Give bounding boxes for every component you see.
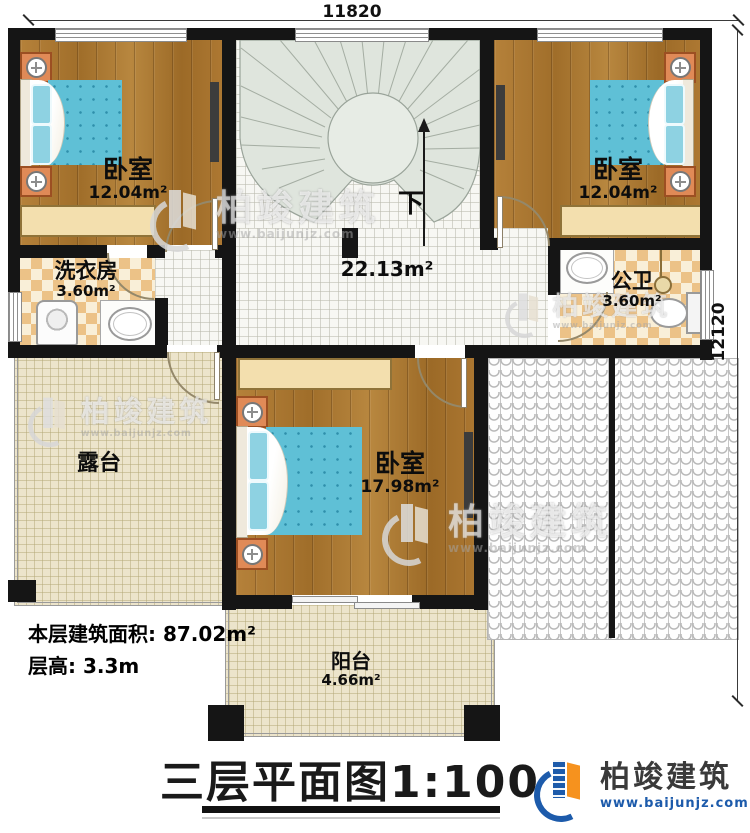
nightstand [236,538,268,570]
brand-logo-icon [534,758,592,814]
washing-machine [36,300,78,346]
dimension-top-value: 11820 [322,2,381,22]
sliding-door-panel [354,602,420,609]
wall-segment [8,28,55,40]
wall-segment [548,250,560,295]
stair-down-label: 下 [398,190,424,219]
title-underline-thin [202,817,500,819]
pillow [31,84,52,125]
wall-segment [222,40,236,610]
laundry-sink [108,307,152,341]
stair-direction-line [423,128,425,246]
title-underline-thick [202,806,500,813]
tv-panel [464,432,473,518]
pillow [248,431,269,481]
dimension-line-top [28,20,738,21]
room-area-bedroom-tl: 12.04m² [89,184,168,203]
pillow [664,84,685,125]
floor-plan-canvas: 柏竣建筑 www.baijunjz.com 柏竣建筑 www.baijunjz.… [0,0,750,833]
door-leaf [461,358,467,408]
wall-segment [661,28,712,40]
wall-segment [465,345,712,358]
brand-website: www.baijunjz.com [600,796,749,811]
floor-height-label: 层高: [28,654,76,678]
brand-name: 柏竣建筑 [600,761,749,796]
room-label-balcony: 阳台 [321,650,380,672]
stair-direction-arrow-icon [418,118,430,132]
balcony-pillar [464,705,500,741]
door-leaf [497,196,503,248]
dimension-right-value: 12120 [709,297,729,367]
nightstand [20,166,52,197]
room-area-balcony: 4.66m² [321,672,380,689]
room-label-laundry: 洗衣房 [55,260,118,283]
wall-segment [480,40,494,250]
window [537,28,663,42]
nightstand [236,396,268,428]
wall-segment [474,358,488,610]
room-area-bedroom-tr: 12.04m² [579,184,658,203]
room-area-bedroom-main: 17.98m² [361,478,440,497]
wall-segment [412,595,488,609]
door-leaf [214,352,220,400]
lamp-icon [26,57,47,78]
lamp-icon [670,57,691,78]
spiral-staircase [236,40,480,232]
wardrobe [20,205,156,237]
room-label-bedroom-tl: 卧室 [89,156,168,184]
room-label-bedroom-main: 卧室 [361,450,440,478]
room-area-laundry: 3.60m² [55,283,118,300]
wardrobe [238,358,392,390]
tv-panel [496,85,505,160]
pillow [664,124,685,165]
wall-segment [700,40,712,270]
dimension-line-right [737,30,738,702]
lamp-icon [670,171,691,192]
plan-title: 三层平面图1:100 [160,746,540,810]
lamp-icon [242,544,263,565]
wall-segment [217,345,415,358]
lamp-icon [242,402,263,423]
room-label-bedroom-tr: 卧室 [579,156,658,184]
floor-height-value: 3.3m [83,654,139,678]
room-area-hall: 22.13m² [341,258,434,280]
floor-area-label: 本层建筑面积: [28,622,156,646]
floor-height-summary: 层高: 3.3m [28,650,139,679]
wall-segment [427,28,537,40]
wall-segment [236,595,292,609]
wall-segment [548,238,712,250]
nightstand [664,166,696,197]
wall-segment [8,345,167,358]
wall-segment [480,238,498,250]
window [55,28,187,42]
wall-segment [155,298,168,345]
lamp-icon [26,171,47,192]
room-label-terrace: 露台 [77,452,121,476]
pillow [248,481,269,531]
wardrobe [560,205,702,237]
window [8,292,22,342]
room-label-bathroom: 公卫 [602,270,661,293]
wall-segment [185,28,295,40]
door-leaf [212,198,218,250]
room-area-bathroom: 3.60m² [602,293,661,310]
wall-segment [342,228,358,258]
roof-ridge-line [609,358,615,638]
pillow [31,124,52,165]
balcony-pillar [208,705,244,741]
wall-segment [8,245,107,258]
window [295,28,429,42]
sliding-door-panel [292,596,358,603]
floor-area-summary: 本层建筑面积: 87.02m² [28,618,256,647]
floor-area-value: 87.02m² [163,622,256,646]
brand-logo: 柏竣建筑 www.baijunjz.com [534,758,749,814]
wall-corner-block [8,580,36,602]
tv-panel [210,82,219,162]
